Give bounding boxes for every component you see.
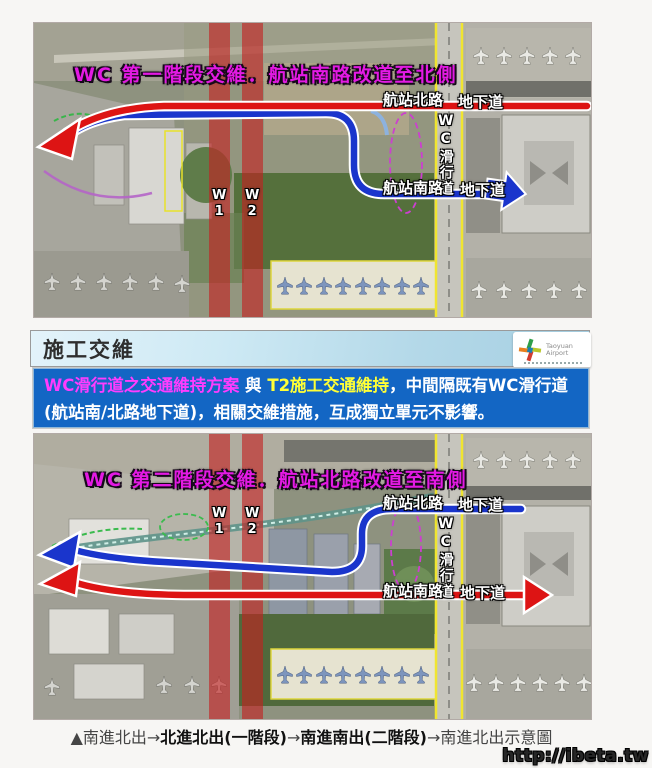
notice-plan-name: WC滑行道之交通維持方案 — [44, 376, 239, 395]
phase1-aerial-map: WC 第一階段交維．航站南路改道至北側 航站北路 地下道 WC滑行道 航站南路 … — [33, 22, 592, 318]
w2-label: W2 — [245, 188, 259, 220]
phase1-title: WC 第一階段交維．航站南路改道至北側 — [74, 60, 458, 87]
taoyuan-airport-logo: Taoyuan Airport — [513, 332, 591, 368]
airport-logo-subtext — [524, 362, 582, 364]
notice-box: WC滑行道之交通維持方案 與 T2施工交通維持，中間隔既有WC滑行道 (航站南/… — [33, 368, 589, 428]
w1-label: W1 — [212, 188, 226, 220]
south-underpass-label: 地下道 — [460, 586, 505, 602]
north-road-label: 航站北路 — [383, 496, 443, 512]
airport-logo-text: Taoyuan Airport — [546, 343, 573, 358]
north-underpass-label: 地下道 — [458, 95, 503, 111]
north-underpass-label: 地下道 — [458, 498, 503, 514]
phase2-aerial-map: WC 第二階段交維．航站北路改道至南側 航站北路 地下道 WC滑行道 航站南路 … — [33, 433, 592, 720]
page: { "page": { "background": "#f7f6f4", "wa… — [0, 0, 652, 768]
parking-lot — [466, 512, 500, 624]
warehouse — [49, 609, 109, 654]
south-underpass-label: 地下道 — [460, 183, 505, 199]
remote-apron — [271, 649, 436, 699]
tower-building — [269, 529, 307, 624]
south-road-label: 航站南路 — [383, 584, 443, 600]
site-watermark: http://ibeta.tw — [502, 746, 649, 766]
building — [129, 128, 184, 224]
caption-stage2: 南進南出(二階段) — [300, 728, 427, 747]
phase2-title: WC 第二階段交維．航站北路改道至南側 — [84, 465, 468, 492]
north-road-label: 航站北路 — [383, 93, 443, 109]
long-building — [284, 440, 439, 462]
parking-lot — [466, 118, 500, 233]
w1-label: W1 — [212, 506, 226, 538]
airport-logo-icon — [517, 337, 543, 363]
figure-caption: ▲南進北出→北進北出(一階段)→南進南出(二階段)→南進北出示意圖 — [33, 724, 590, 748]
section-title: 施工交維 — [43, 334, 135, 364]
notice-line2: (航站南/北路地下道)，相關交維措施，互成獨立單元不影響。 — [44, 403, 494, 422]
notice-t2-name: T2施工交通維持 — [267, 376, 389, 395]
remote-apron — [271, 261, 436, 309]
w2-label: W2 — [245, 506, 259, 538]
south-road-label: 航站南路 — [383, 181, 443, 197]
caption-stage1: 北進北出(一階段) — [160, 728, 287, 747]
section-header-bar: 施工交維 Taoyuan Airport — [30, 330, 590, 367]
